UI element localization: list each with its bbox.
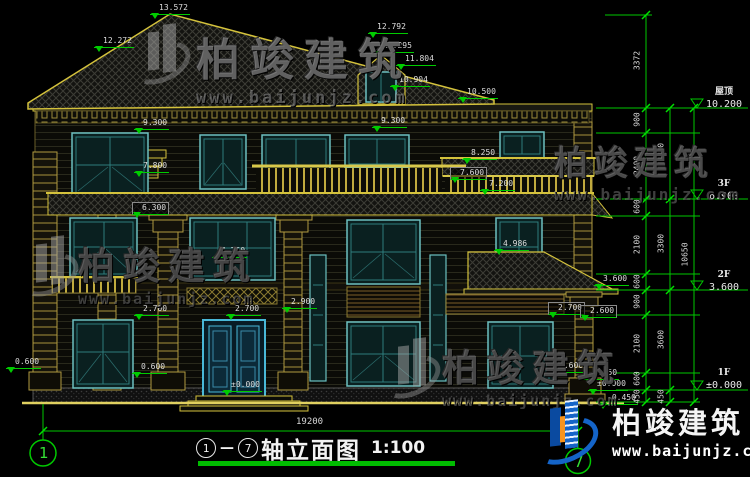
level-label-3f: 3F6.900 <box>698 176 750 202</box>
dim-label: 10650 <box>681 238 690 272</box>
elevation-mark: 9.300 <box>372 116 407 128</box>
elevation-mark: 10.904 <box>390 75 430 87</box>
elevation-mark: 7.600 <box>450 167 487 180</box>
grid-bubble-1: 1 <box>39 444 49 462</box>
cad-elevation-screenshot: 13.572 12.272 12.792 12.295 11.804 10.90… <box>0 0 750 477</box>
level-label-2f: 2F3.600 <box>698 267 750 293</box>
elevation-mark: 2.600 <box>580 305 617 318</box>
title-axis-from: 1 <box>196 438 216 458</box>
dim-label: 2100 <box>633 228 642 262</box>
title-dash: — <box>220 440 234 456</box>
title-underline <box>198 461 455 466</box>
elevation-mark: 0.450 <box>584 368 619 380</box>
window-1f-center <box>347 322 420 386</box>
elevation-mark: ±0.000 <box>588 379 628 391</box>
elevation-mark: 2.700 <box>134 304 169 316</box>
dim-label: 2400 <box>633 149 642 183</box>
elevation-mark: 4.986 <box>494 239 529 251</box>
elevation-mark: 11.804 <box>396 54 436 66</box>
elevation-mark: 9.300 <box>134 118 169 130</box>
elevation-mark: 12.295 <box>374 41 414 53</box>
window-strip-left <box>310 255 326 381</box>
window-2f-left <box>70 218 137 278</box>
elevation-mark: 10.500 <box>458 87 498 99</box>
window-3f-center <box>345 135 409 168</box>
grid-bubble-7: 7 <box>574 453 584 471</box>
elevation-mark: 3.600 <box>594 274 629 286</box>
elevation-mark: 8.250 <box>462 148 497 160</box>
title-scale: 1:100 <box>371 438 425 458</box>
window-1f-left <box>73 320 133 388</box>
window-2f-center <box>347 220 420 284</box>
elevation-mark: 2.900 <box>282 297 317 309</box>
dim-label: 3300 <box>657 227 666 261</box>
elevation-mark: 7.800 <box>134 161 169 173</box>
title-name: 轴立面图 <box>261 431 361 465</box>
dim-label: 900 <box>633 285 642 319</box>
elevation-mark: 7.200 <box>480 179 515 191</box>
dim-label: 2100 <box>633 327 642 361</box>
window-3f-b <box>200 135 246 189</box>
dim-label: 3300 <box>657 136 666 170</box>
elevation-mark: 0.600 <box>6 357 41 369</box>
dim-label: 450 <box>633 380 642 414</box>
elevation-mark: 12.792 <box>368 22 408 34</box>
elevation-mark: 2.700 <box>226 304 261 316</box>
dim-label: 3600 <box>657 323 666 357</box>
elevation-mark: 4.750 <box>212 246 247 258</box>
dim-label: 600 <box>633 190 642 224</box>
elevation-mark: 0.600 <box>132 362 167 374</box>
drawing-title: 1 — 7 轴立面图 1:100 <box>196 431 425 465</box>
elevation-mark: ±0.000 <box>222 380 262 392</box>
elevation-mark: 13.572 <box>150 3 190 15</box>
dim-label: 3372 <box>633 44 642 78</box>
dim-label: 900 <box>633 103 642 137</box>
overall-dimension: 19200 <box>296 417 323 427</box>
window-1f-porch <box>488 322 553 388</box>
pent-roof-band <box>46 193 612 218</box>
level-label-roof: 屋顶10.200 <box>698 84 750 110</box>
window-strip-right <box>430 255 446 381</box>
elevation-mark: 6.300 <box>132 202 169 215</box>
window-3f-right <box>500 132 544 158</box>
elevation-mark: 12.272 <box>94 36 134 48</box>
level-label-1f: 1F±0.000 <box>698 365 750 391</box>
dim-label: 450 <box>657 380 666 414</box>
elevation-mark: 0.600 <box>550 361 585 373</box>
title-axis-to: 7 <box>238 438 258 458</box>
